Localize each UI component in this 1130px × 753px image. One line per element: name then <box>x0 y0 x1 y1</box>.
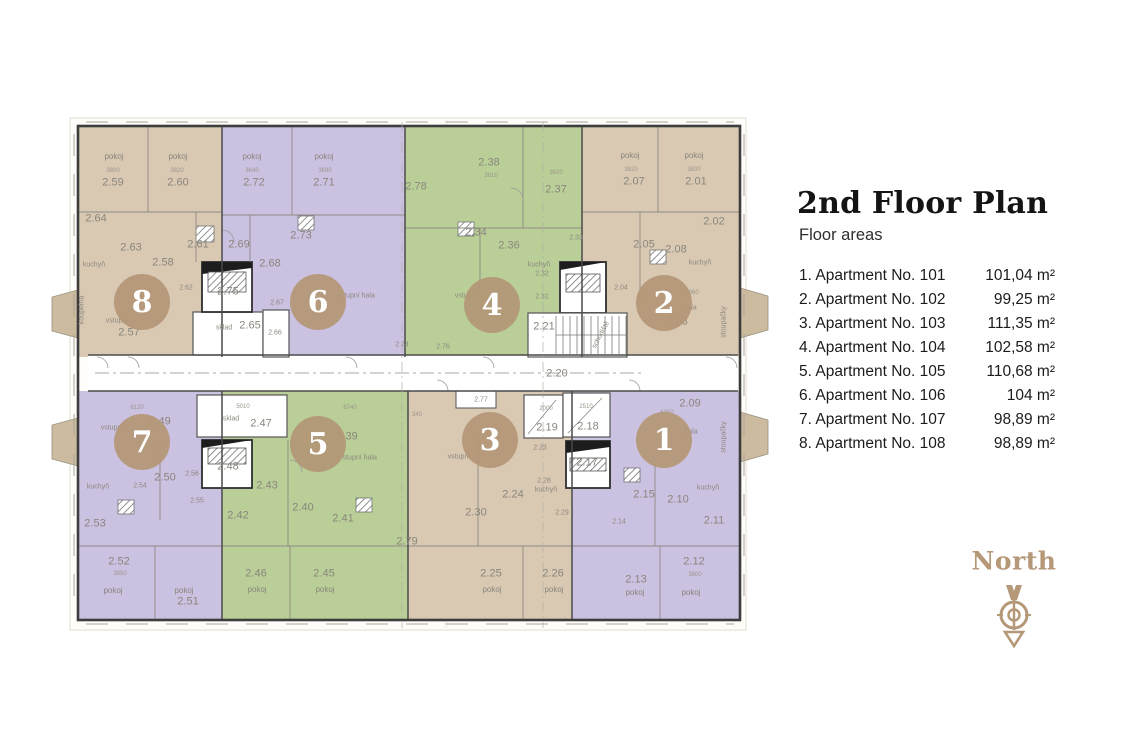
elevator-label: 2.75 <box>217 287 238 298</box>
apartment-legend: 1. Apartment No. 101 101,04 m² 2. Apartm… <box>799 264 1055 456</box>
room-label: 2.42 <box>227 511 248 522</box>
apartment-name: 8. Apartment No. 108 <box>799 435 945 453</box>
room-label: 2.11 <box>704 516 725 527</box>
dim-label: 5010 <box>236 404 249 410</box>
room-label: 2.04 <box>614 285 628 292</box>
storage-room-247 <box>197 395 287 437</box>
room-label: kuchyň <box>689 260 711 267</box>
room-label: pokoj <box>104 153 123 161</box>
legend-row: 2. Apartment No. 102 99,25 m² <box>799 288 1055 312</box>
room-label: 2.65 <box>239 321 260 332</box>
room-label: pokoj <box>315 586 334 594</box>
dim-label: 3800 <box>688 572 701 578</box>
room-label: 2.36 <box>498 241 519 252</box>
floor-plan-page: pokoj 3800 2.59 pokoj 3820 2.60 2.64 2.6… <box>0 0 1130 753</box>
legend-row: 4. Apartment No. 104 102,58 m² <box>799 336 1055 360</box>
room-label: pokoj <box>242 153 261 161</box>
elevator-label: 2.17 <box>576 458 597 469</box>
room-label: 2.71 <box>313 178 334 189</box>
room-label: 2.38 <box>478 158 499 169</box>
room-label: 2.67 <box>270 300 284 307</box>
page-subtitle: Floor areas <box>799 226 882 245</box>
dim-label: 2510 <box>579 404 592 410</box>
room-label: 2.09 <box>679 399 700 410</box>
legend-row: 8. Apartment No. 108 98,89 m² <box>799 432 1055 456</box>
room-label: 2.37 <box>545 185 566 196</box>
unit-circle-3: 3 <box>462 412 518 468</box>
room-label: pokoj <box>620 152 639 160</box>
elevator-label: 2.48 <box>217 462 238 473</box>
room-label: 2.08 <box>665 245 686 256</box>
compass-icon <box>997 585 1031 646</box>
apartment-area: 98,89 m² <box>994 435 1055 453</box>
room-label: 2.33 <box>569 235 583 242</box>
apartment-name: 5. Apartment No. 105 <box>799 363 945 381</box>
room-label: 2.78 <box>405 182 426 193</box>
room-label: 2.02 <box>703 217 724 228</box>
room-label: 2.05 <box>633 240 654 251</box>
elevator-hatch <box>566 274 600 292</box>
dim-label: 3610 <box>484 173 497 179</box>
room-label: 2.26 <box>542 569 563 580</box>
room-label: 2.74 <box>395 342 409 349</box>
north-label: North <box>972 547 1057 576</box>
room-label: sklad <box>216 325 232 332</box>
room-label: kuchyň <box>535 487 557 494</box>
room-label: 2.55 <box>190 498 204 505</box>
room-label: 2.72 <box>243 178 264 189</box>
unit-circle-5: 5 <box>290 416 346 472</box>
apartment-name: 1. Apartment No. 101 <box>799 267 945 285</box>
room-label: pokoj <box>174 587 193 595</box>
room-label: 2.46 <box>245 569 266 580</box>
room-label: 2.52 <box>108 557 129 568</box>
room-label: 2.34 <box>465 228 486 239</box>
room-label: pokoj <box>681 589 700 597</box>
room-label: 2.73 <box>290 231 311 242</box>
room-label: 2.24 <box>502 490 523 501</box>
dim-label: 3800 <box>106 168 119 174</box>
room-label: 2.12 <box>683 557 704 568</box>
room-label: kuchyň <box>87 484 109 491</box>
room-label: 2.60 <box>167 178 188 189</box>
dim-label: 6740 <box>343 405 356 411</box>
room-label: 2.01 <box>685 177 706 188</box>
unit-circle-7: 7 <box>114 414 170 470</box>
room-label: 2.30 <box>465 508 486 519</box>
room-label: pokoj <box>168 153 187 161</box>
room-label: 2.62 <box>179 285 193 292</box>
room-label: stoupačky <box>721 306 728 338</box>
apartment-name: 7. Apartment No. 107 <box>799 411 945 429</box>
room-label: koupelna <box>79 296 86 324</box>
unit-circle-1: 1 <box>636 412 692 468</box>
room-label: 2.45 <box>313 569 334 580</box>
legend-row: 6. Apartment No. 106 104 m² <box>799 384 1055 408</box>
room-label: 2.69 <box>228 240 249 251</box>
room-label: pokoj <box>247 586 266 594</box>
room-label: 2.61 <box>187 240 208 251</box>
room-label: 2.50 <box>154 473 175 484</box>
room-label: 2.63 <box>120 243 141 254</box>
legend-row: 5. Apartment No. 105 110,68 m² <box>799 360 1055 384</box>
room-label: 2.66 <box>268 330 282 337</box>
room-label: 2.07 <box>623 177 644 188</box>
room-label: 2.41 <box>332 514 353 525</box>
dim-label: 3640 <box>245 168 258 174</box>
room-label: 2.43 <box>256 481 277 492</box>
unit-circle-2: 2 <box>636 275 692 331</box>
dim-label: 3620 <box>549 170 562 176</box>
apartment-name: 4. Apartment No. 104 <box>799 339 945 357</box>
room-label: 2.29 <box>555 510 569 517</box>
room-label: sklad <box>223 416 239 423</box>
room-label: 2.19 <box>536 423 557 434</box>
room-label: pokoj <box>482 586 501 594</box>
room-label: 2.18 <box>577 422 598 433</box>
room-label: kuchyň <box>528 262 550 269</box>
room-label: 2.54 <box>133 483 147 490</box>
room-label: 2.40 <box>292 503 313 514</box>
room-label: 2.47 <box>250 419 271 430</box>
apartment-name: 2. Apartment No. 102 <box>799 291 945 309</box>
room-label: 2.58 <box>152 258 173 269</box>
room-label: 2.23 <box>533 445 547 452</box>
unit-circle-8: 8 <box>114 274 170 330</box>
storage-room-265 <box>193 312 263 355</box>
unit-circle-6: 6 <box>290 274 346 330</box>
apartment-area: 110,68 m² <box>986 363 1055 381</box>
dim-label: 3850 <box>113 571 126 577</box>
room-label: pokoj <box>544 586 563 594</box>
dim-label: 340 <box>412 412 422 418</box>
apartment-area: 111,35 m² <box>988 315 1056 333</box>
apartment-area: 101,04 m² <box>985 267 1055 285</box>
room-label: kuchyň <box>697 485 719 492</box>
apartment-area: 99,25 m² <box>994 291 1055 309</box>
room-label: stoupačky <box>721 421 728 453</box>
stairs-label: 2.21 <box>533 322 554 333</box>
dim-label: 3820 <box>624 167 637 173</box>
corridor-label: 2.20 <box>546 369 567 380</box>
room-label: 2.77 <box>474 397 488 404</box>
apartment-name: 3. Apartment No. 103 <box>799 315 945 333</box>
room-label: 2.15 <box>633 490 654 501</box>
dim-label: 3800 <box>687 167 700 173</box>
room-label: pokoj <box>103 587 122 595</box>
room-label: 2.10 <box>667 495 688 506</box>
room-label: 2.31 <box>535 294 549 301</box>
apartment-area: 102,58 m² <box>985 339 1055 357</box>
room-label: 2.68 <box>259 259 280 270</box>
room-label: 2.13 <box>625 575 646 586</box>
apartment-area: 98,89 m² <box>994 411 1055 429</box>
room-label: kuchyň <box>83 262 105 269</box>
room-label: 2.32 <box>535 271 549 278</box>
room-label: 2.76 <box>436 344 450 351</box>
room-label: 2.64 <box>85 214 106 225</box>
dim-label: 3820 <box>170 168 183 174</box>
dim-label: 6120 <box>130 405 143 411</box>
room-label: pokoj <box>684 152 703 160</box>
room-label: 2.56 <box>185 471 199 478</box>
apartment-name: 6. Apartment No. 106 <box>799 387 945 405</box>
dim-label: 2000 <box>539 406 552 412</box>
legend-row: 1. Apartment No. 101 101,04 m² <box>799 264 1055 288</box>
room-label: vstupní hala <box>339 455 377 462</box>
room-label: pokoj <box>625 589 644 597</box>
room-label: 2.14 <box>612 519 626 526</box>
legend-row: 3. Apartment No. 103 111,35 m² <box>799 312 1055 336</box>
room-label: 2.51 <box>177 597 198 608</box>
unit-circle-4: 4 <box>464 277 520 333</box>
room-label: 2.53 <box>84 519 105 530</box>
room-label: 2.28 <box>537 478 551 485</box>
page-title: 2nd Floor Plan <box>797 186 1048 221</box>
room-label: 2.59 <box>102 178 123 189</box>
room-label: pokoj <box>314 153 333 161</box>
room-label: 2.79 <box>396 537 417 548</box>
apartment-area: 104 m² <box>1007 387 1055 405</box>
room-label: 2.25 <box>480 569 501 580</box>
dim-label: 3690 <box>318 168 331 174</box>
legend-row: 7. Apartment No. 107 98,89 m² <box>799 408 1055 432</box>
